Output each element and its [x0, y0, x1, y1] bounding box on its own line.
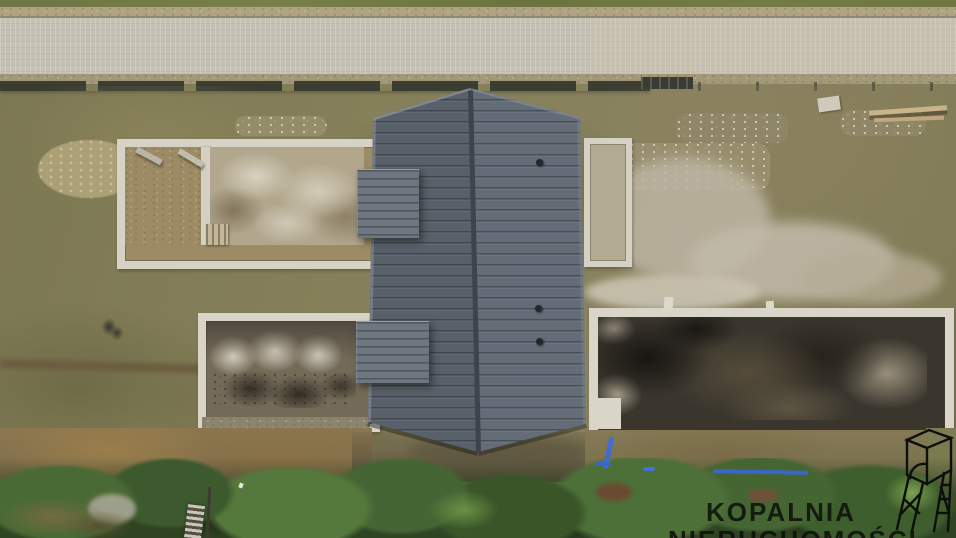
entry-canopy-upper	[357, 169, 419, 238]
upper-foundation-slab	[210, 147, 364, 245]
rubble-patch-2	[676, 113, 788, 143]
lower-left-foundation-frame	[198, 313, 380, 432]
blue-pipe-elbow	[596, 462, 611, 466]
dead-leaf-patch-1	[596, 483, 632, 501]
roof-vent-3	[536, 338, 543, 345]
concrete-wash-4	[800, 252, 942, 304]
road-warm-tint	[590, 18, 956, 74]
upper-foundation-east-end	[584, 138, 632, 267]
upper-foundation-frame	[117, 139, 388, 269]
lower-left-slab-speckle	[212, 373, 350, 405]
blue-pipe-short	[643, 467, 655, 471]
aerial-photo-scene: KOPALNIA NIERUCHOMOŚCI	[0, 0, 956, 538]
dark-pallet	[641, 77, 693, 89]
watermark-line2: NIERUCHOMOŚCI	[668, 525, 918, 538]
watermark-line1: KOPALNIA	[706, 497, 856, 528]
roof-vent-1	[536, 159, 543, 166]
foundation-step-notch	[589, 398, 621, 429]
upper-foundation-dirt-cell	[125, 147, 201, 245]
lower-right-slab-mottle	[598, 317, 927, 420]
foundation-post-tab-1	[664, 297, 674, 312]
mine-headframe-icon	[892, 423, 956, 535]
light-bush-center	[418, 484, 510, 536]
foundation-post-tab-2	[766, 301, 775, 312]
dark-debris-object	[101, 317, 125, 343]
roof-vent-2	[535, 305, 542, 312]
entry-canopy-lower	[356, 321, 429, 383]
dry-brush-corner	[0, 496, 132, 538]
debris-strip-left	[235, 116, 327, 136]
block-stack	[206, 224, 228, 245]
